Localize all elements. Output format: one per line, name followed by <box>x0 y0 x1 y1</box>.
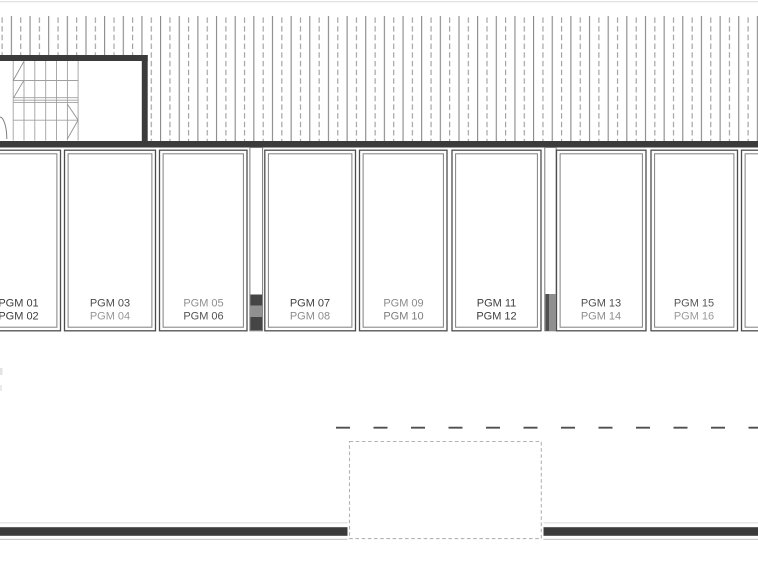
svg-text:PGM 01: PGM 01 <box>0 298 39 310</box>
svg-text:PGM 10: PGM 10 <box>383 311 423 323</box>
svg-text:PGM 09: PGM 09 <box>383 298 423 310</box>
svg-text:PGM 11: PGM 11 <box>477 298 517 310</box>
svg-text:PGM 03: PGM 03 <box>90 298 130 310</box>
svg-text:PGM 07: PGM 07 <box>290 298 330 310</box>
svg-text:PGM 14: PGM 14 <box>581 311 621 323</box>
svg-text:PGM 12: PGM 12 <box>476 311 516 323</box>
svg-text:PGM 13: PGM 13 <box>581 298 621 310</box>
svg-text:PGM 04: PGM 04 <box>90 311 130 323</box>
svg-text:PGM 05: PGM 05 <box>183 298 223 310</box>
svg-text:PGM 15: PGM 15 <box>674 298 714 310</box>
svg-text:PGM 08: PGM 08 <box>290 311 330 323</box>
svg-text:PGM 02: PGM 02 <box>0 311 39 323</box>
svg-text:PGM 16: PGM 16 <box>674 311 714 323</box>
svg-text:PGM 06: PGM 06 <box>183 311 223 323</box>
